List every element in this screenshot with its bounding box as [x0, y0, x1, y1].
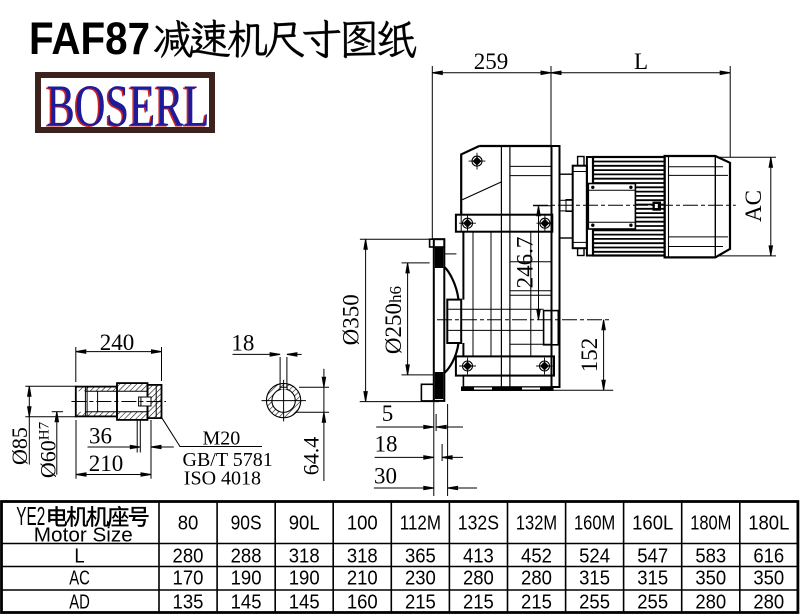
svg-text:259: 259	[474, 49, 509, 74]
svg-text:350: 350	[695, 567, 726, 590]
svg-text:524: 524	[579, 545, 610, 568]
svg-text:90L: 90L	[289, 512, 320, 535]
svg-text:210: 210	[89, 451, 124, 476]
svg-text:280: 280	[753, 591, 784, 614]
svg-text:Ø350: Ø350	[339, 294, 364, 345]
svg-text:30: 30	[374, 464, 397, 489]
svg-text:255: 255	[637, 591, 668, 614]
svg-text:318: 318	[347, 545, 378, 568]
svg-text:132S: 132S	[458, 512, 499, 535]
svg-text:AC: AC	[741, 190, 766, 222]
svg-text:18: 18	[231, 331, 254, 356]
svg-text:5: 5	[382, 401, 394, 426]
svg-text:210: 210	[347, 567, 378, 590]
svg-text:583: 583	[695, 545, 726, 568]
svg-text:160: 160	[347, 591, 378, 614]
svg-text:135: 135	[173, 591, 204, 614]
svg-text:80: 80	[178, 512, 199, 535]
svg-text:215: 215	[463, 591, 494, 614]
svg-text:215: 215	[521, 591, 552, 614]
svg-text:246.7: 246.7	[513, 237, 538, 289]
svg-text:315: 315	[579, 567, 610, 590]
svg-text:64.4: 64.4	[299, 437, 324, 476]
svg-text:Motor Size: Motor Size	[34, 525, 133, 547]
svg-text:280: 280	[695, 591, 726, 614]
svg-text:160M: 160M	[574, 512, 615, 535]
svg-text:145: 145	[289, 591, 320, 614]
svg-text:240: 240	[100, 330, 135, 355]
svg-text:280: 280	[173, 545, 204, 568]
svg-text:255: 255	[579, 591, 610, 614]
svg-text:190: 190	[289, 567, 320, 590]
svg-text:230: 230	[405, 567, 436, 590]
svg-text:160L: 160L	[632, 512, 673, 535]
svg-text:90S: 90S	[231, 512, 262, 535]
svg-text:280: 280	[521, 567, 552, 590]
svg-text:BOSERL: BOSERL	[47, 73, 210, 139]
svg-text:112M: 112M	[400, 512, 441, 535]
svg-text:AC: AC	[69, 567, 90, 590]
svg-text:350: 350	[753, 567, 784, 590]
svg-text:152: 152	[577, 338, 602, 373]
svg-text:M20: M20	[203, 428, 241, 450]
svg-text:190: 190	[231, 567, 262, 590]
svg-text:L: L	[634, 49, 648, 74]
svg-text:FAF87: FAF87	[29, 13, 150, 64]
svg-text:180L: 180L	[748, 512, 789, 535]
svg-text:AD: AD	[69, 591, 90, 614]
svg-text:280: 280	[463, 567, 494, 590]
svg-text:132M: 132M	[516, 512, 557, 535]
svg-text:Ø85: Ø85	[7, 427, 32, 465]
svg-text:36: 36	[89, 424, 112, 449]
svg-text:452: 452	[521, 545, 552, 568]
svg-text:547: 547	[637, 545, 668, 568]
svg-text:18: 18	[375, 432, 398, 457]
svg-text:100: 100	[347, 512, 378, 535]
svg-text:145: 145	[231, 591, 262, 614]
svg-text:288: 288	[231, 545, 262, 568]
svg-text:L: L	[74, 545, 84, 568]
svg-text:170: 170	[173, 567, 204, 590]
svg-text:180M: 180M	[690, 512, 731, 535]
svg-text:413: 413	[463, 545, 494, 568]
svg-text:315: 315	[637, 567, 668, 590]
svg-text:365: 365	[405, 545, 436, 568]
svg-text:616: 616	[753, 545, 784, 568]
svg-text:ISO 4018: ISO 4018	[184, 468, 261, 490]
svg-text:215: 215	[405, 591, 436, 614]
svg-text:318: 318	[289, 545, 320, 568]
